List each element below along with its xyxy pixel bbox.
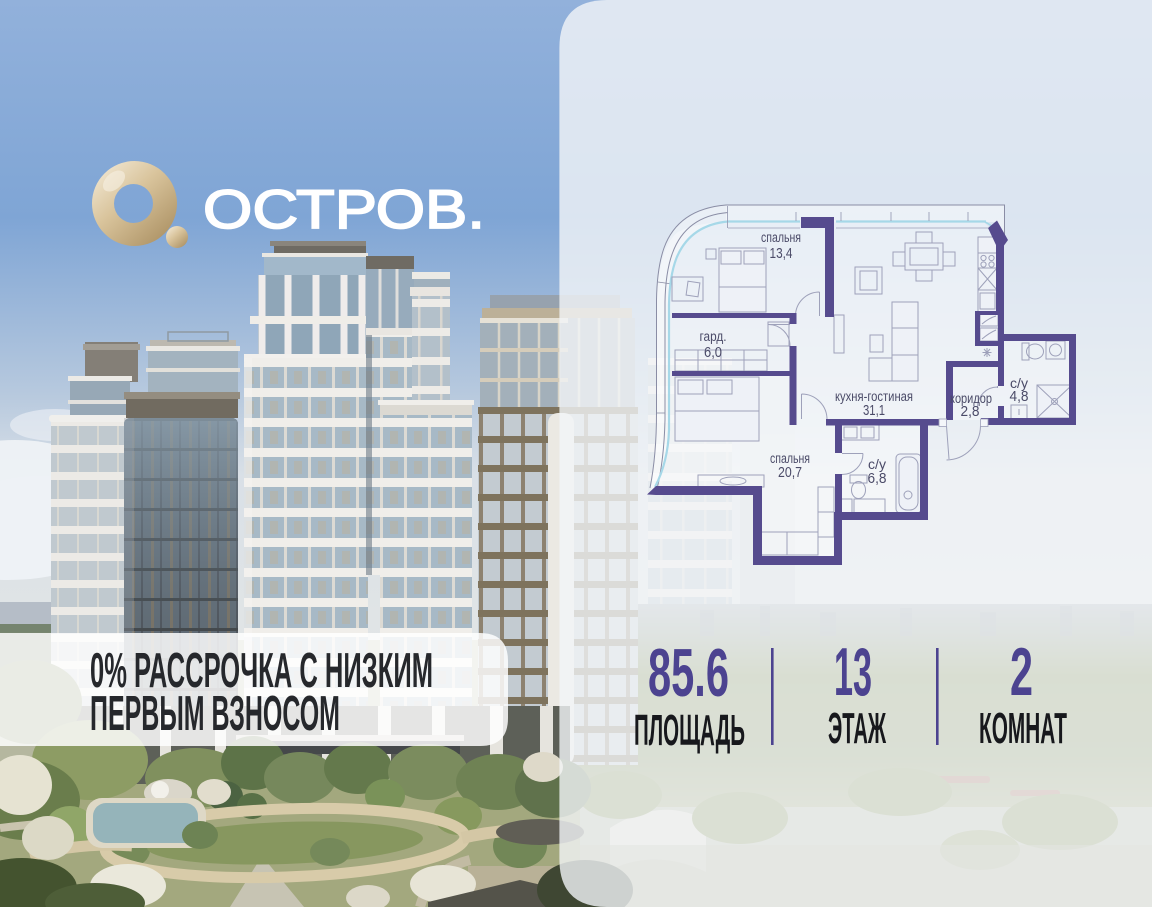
svg-text:КОМНАТ: КОМНАТ [979, 704, 1067, 753]
svg-text:ЭТАЖ: ЭТАЖ [828, 704, 886, 753]
svg-text:спальня: спальня [770, 451, 810, 466]
svg-text:31,1: 31,1 [863, 403, 885, 419]
svg-text:6,8: 6,8 [868, 471, 887, 487]
svg-text:с/у: с/у [868, 457, 886, 472]
svg-text:6,0: 6,0 [704, 345, 722, 361]
svg-text:2: 2 [1010, 634, 1033, 710]
svg-text:85.6: 85.6 [648, 635, 729, 711]
svg-text:13: 13 [834, 634, 872, 710]
svg-text:ОСТРОВ.: ОСТРОВ. [203, 178, 485, 240]
svg-text:спальня: спальня [761, 230, 801, 245]
svg-text:гард.: гард. [700, 329, 727, 344]
svg-text:ПЕРВЫМ ВЗНОСОМ: ПЕРВЫМ ВЗНОСОМ [90, 687, 340, 741]
svg-text:13,4: 13,4 [770, 246, 793, 262]
svg-text:4,8: 4,8 [1010, 389, 1029, 405]
svg-text:2,8: 2,8 [961, 404, 980, 420]
svg-text:ПЛОЩАДЬ: ПЛОЩАДЬ [634, 706, 745, 755]
svg-text:20,7: 20,7 [778, 465, 802, 481]
svg-text:кухня-гостиная: кухня-гостиная [835, 389, 913, 404]
